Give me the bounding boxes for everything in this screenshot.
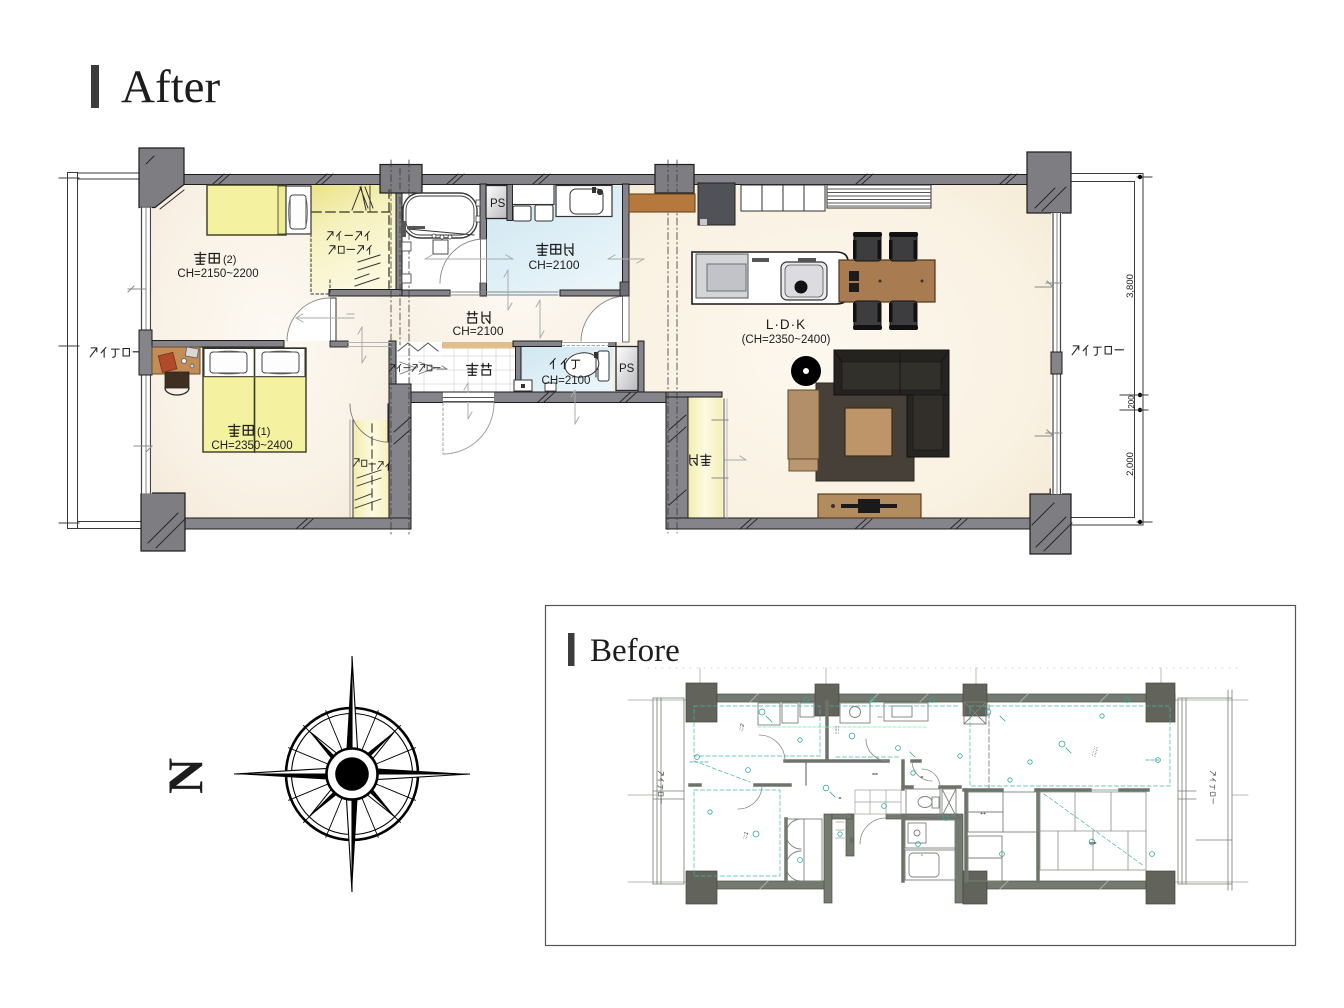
svg-text:==: == <box>872 772 878 778</box>
svg-text:(1): (1) <box>257 426 270 438</box>
svg-text:200: 200 <box>1127 395 1136 409</box>
svg-text:CH=2100: CH=2100 <box>452 324 503 338</box>
svg-text:N: N <box>157 758 213 794</box>
svg-text:2,000: 2,000 <box>1125 452 1136 476</box>
svg-text:(CH=2350~2400): (CH=2350~2400) <box>742 334 831 346</box>
svg-text:;;;;: ;;;; <box>849 837 855 843</box>
svg-text:=: = <box>921 852 924 857</box>
svg-text:==: == <box>1089 841 1097 847</box>
svg-text:++: ++ <box>980 811 986 817</box>
svg-text:PS: PS <box>619 363 635 375</box>
svg-text:PS: PS <box>490 198 506 210</box>
svg-text:==: == <box>877 714 883 719</box>
svg-text:(2): (2) <box>223 254 236 266</box>
svg-text:;;;;;;: ;;;;;; <box>834 726 840 734</box>
svg-text:=: = <box>839 796 842 802</box>
svg-text:After: After <box>121 61 221 113</box>
svg-text:CH=2150~2200: CH=2150~2200 <box>177 268 258 280</box>
svg-text:L·D·K: L·D·K <box>766 317 806 332</box>
svg-text:CH=2100: CH=2100 <box>528 258 579 272</box>
svg-text:=: = <box>921 775 924 781</box>
svg-text:CH=2100: CH=2100 <box>542 375 591 387</box>
svg-text:Before: Before <box>590 633 680 669</box>
svg-text:CH=2350~2400: CH=2350~2400 <box>211 440 292 452</box>
svg-text:3,800: 3,800 <box>1125 274 1136 298</box>
